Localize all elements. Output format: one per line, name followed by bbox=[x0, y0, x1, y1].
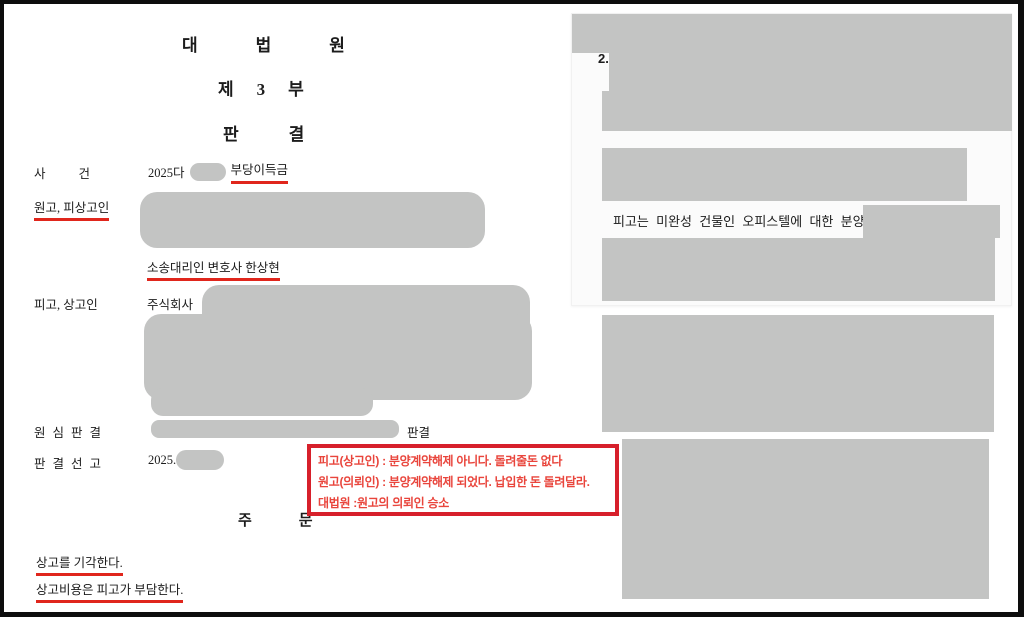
excerpt-redaction-para2 bbox=[602, 148, 967, 201]
court-title: 대법원 bbox=[182, 31, 403, 56]
annotation-line-plaintiff: 원고(의뢰인) : 분양계약해제 되었다. 납입한 돈 돌려달라. bbox=[318, 472, 608, 493]
excerpt-redaction-block-4 bbox=[602, 315, 994, 432]
sentencing-value: 2025. bbox=[148, 453, 176, 468]
document-page: 대법원 제3부 판결 사건 2025다 부당이득금 원고, 피상고인 소송대리인… bbox=[0, 0, 1024, 617]
plaintiff-name-redaction bbox=[140, 192, 485, 248]
defendant-label: 피고, 상고인 bbox=[34, 294, 98, 313]
excerpt-redaction-para3 bbox=[602, 238, 995, 301]
defendant-prefix: 주식회사 bbox=[147, 294, 193, 313]
judgment-title: 판결 bbox=[223, 120, 354, 145]
excerpt-visible-text: 피고는 미완성 건물인 오피스텔에 대한 분양권은 bbox=[613, 211, 888, 230]
case-label: 사건 bbox=[34, 163, 123, 182]
excerpt-redaction-para1a bbox=[609, 53, 1012, 91]
plaintiff-label: 원고, 피상고인 bbox=[34, 197, 109, 216]
case-type: 부당이득금 bbox=[231, 159, 289, 184]
annotation-line-defendant: 피고(상고인) : 분양계약해제 아니다. 돌려줄돈 없다 bbox=[318, 451, 608, 472]
lower-court-label: 원심판결 bbox=[34, 422, 108, 441]
section-number: 2. bbox=[598, 51, 609, 66]
division-title: 제3부 bbox=[218, 75, 327, 100]
annotation-box: 피고(상고인) : 분양계약해제 아니다. 돌려줄돈 없다 원고(의뢰인) : … bbox=[307, 444, 619, 516]
excerpt-redaction-inline bbox=[863, 205, 1000, 238]
annotation-line-court: 대법원 :원고의 의뢰인 승소 bbox=[318, 493, 608, 514]
excerpt-redaction-block-5 bbox=[622, 439, 989, 599]
excerpt-redaction-top bbox=[572, 14, 1012, 53]
order-line-2: 상고비용은 피고가 부담한다. bbox=[36, 579, 183, 598]
sentencing-label: 판결선고 bbox=[34, 453, 108, 472]
sentencing-date-redaction bbox=[176, 450, 224, 470]
lower-court-suffix: 판결 bbox=[407, 422, 430, 441]
case-number-prefix: 2025다 bbox=[148, 162, 185, 181]
order-line-1: 상고를 기각한다. bbox=[36, 552, 123, 571]
lower-court-redaction bbox=[151, 420, 399, 438]
defendant-address-redaction-2 bbox=[151, 388, 373, 416]
excerpt-redaction-para1b bbox=[602, 91, 1012, 131]
case-number-redaction bbox=[190, 163, 226, 181]
excerpt-panel: 2. 피고는 미완성 건물인 오피스텔에 대한 분양권은 bbox=[571, 13, 1012, 306]
plaintiff-counsel: 소송대리인 변호사 한상현 bbox=[147, 257, 280, 276]
